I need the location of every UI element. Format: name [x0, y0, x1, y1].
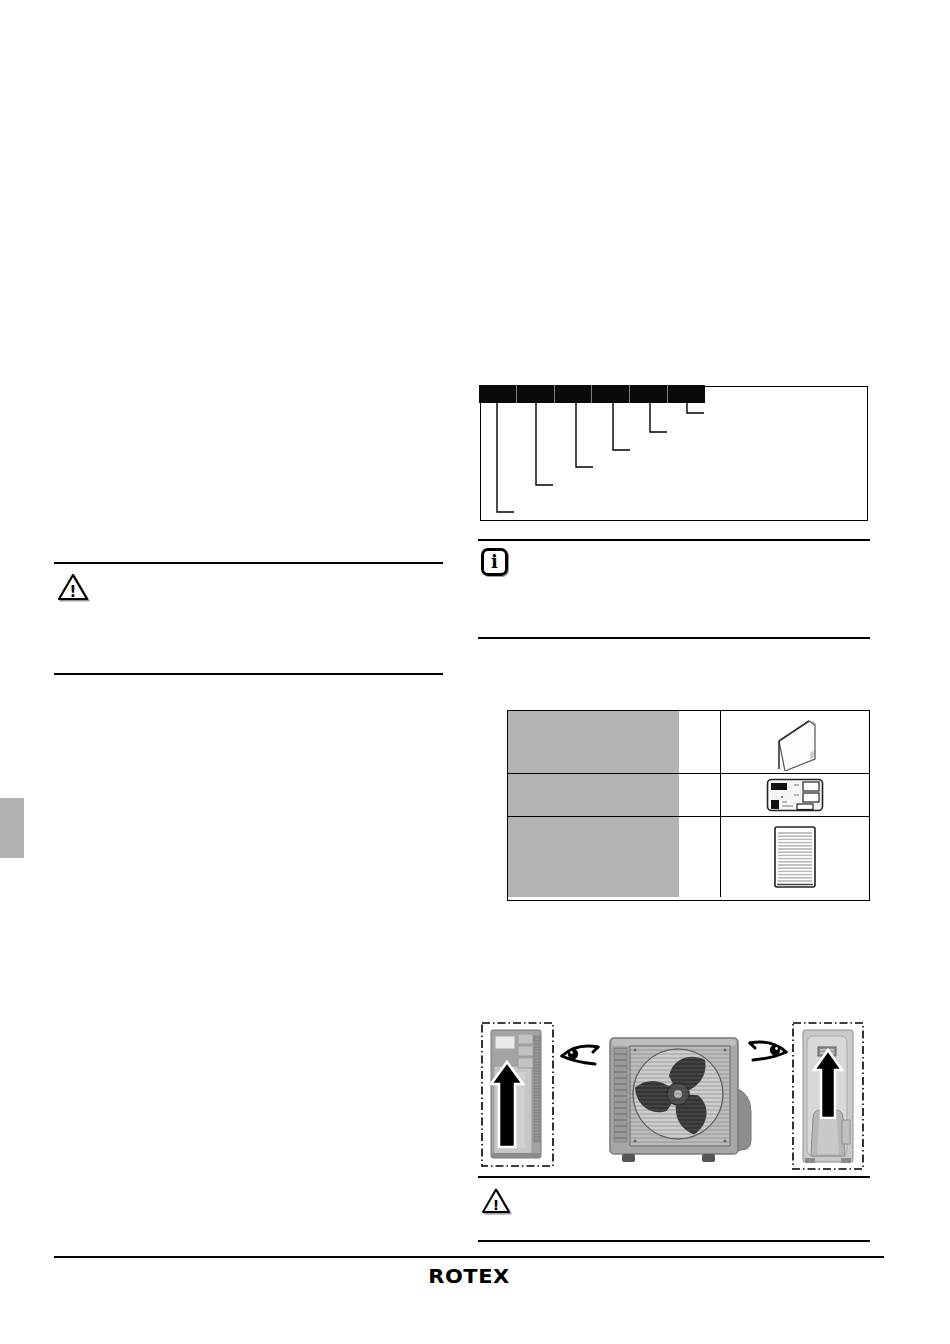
- section-rule: [478, 539, 870, 541]
- section-rule: [54, 562, 443, 564]
- item-quantity-cell: [679, 817, 721, 897]
- document-sheet-icon: [773, 825, 817, 889]
- item-label-cell: [508, 774, 679, 816]
- unit-left-side-view: [481, 1022, 554, 1167]
- eye-icon: [748, 1038, 788, 1066]
- warning-triangle-icon: !: [479, 1186, 513, 1217]
- operation-manual-icon: [767, 713, 823, 771]
- section-rule: [54, 673, 443, 675]
- item-quantity-cell: [679, 711, 721, 773]
- item-label-cell: [508, 711, 679, 773]
- table-row: [508, 817, 869, 897]
- unit-right-side-view: [792, 1022, 864, 1170]
- model-code-callout-lines: [470, 378, 880, 528]
- info-icon: i: [481, 548, 508, 576]
- table-row: [508, 774, 869, 817]
- rotex-logo: ROTEX: [430, 1265, 508, 1288]
- section-rule: [478, 1240, 870, 1242]
- warning-triangle-icon: !: [55, 571, 91, 604]
- item-image-cell: [721, 711, 869, 773]
- delivery-table: [507, 710, 870, 901]
- page-edge-tab: [0, 798, 24, 858]
- footer-rule: [54, 1256, 884, 1258]
- manual-page: ! i: [0, 0, 950, 1344]
- svg-text:!: !: [70, 583, 77, 601]
- section-rule: [478, 637, 870, 639]
- table-row: [508, 711, 869, 774]
- unit-front-view: [598, 1028, 753, 1168]
- rating-plate-icon: [766, 778, 824, 812]
- item-image-cell: [721, 774, 869, 816]
- item-image-cell: [721, 817, 869, 897]
- section-rule: [478, 1176, 870, 1178]
- svg-text:!: !: [493, 1197, 499, 1213]
- eye-icon: [560, 1042, 600, 1070]
- item-label-cell: [508, 817, 679, 897]
- item-quantity-cell: [679, 774, 721, 816]
